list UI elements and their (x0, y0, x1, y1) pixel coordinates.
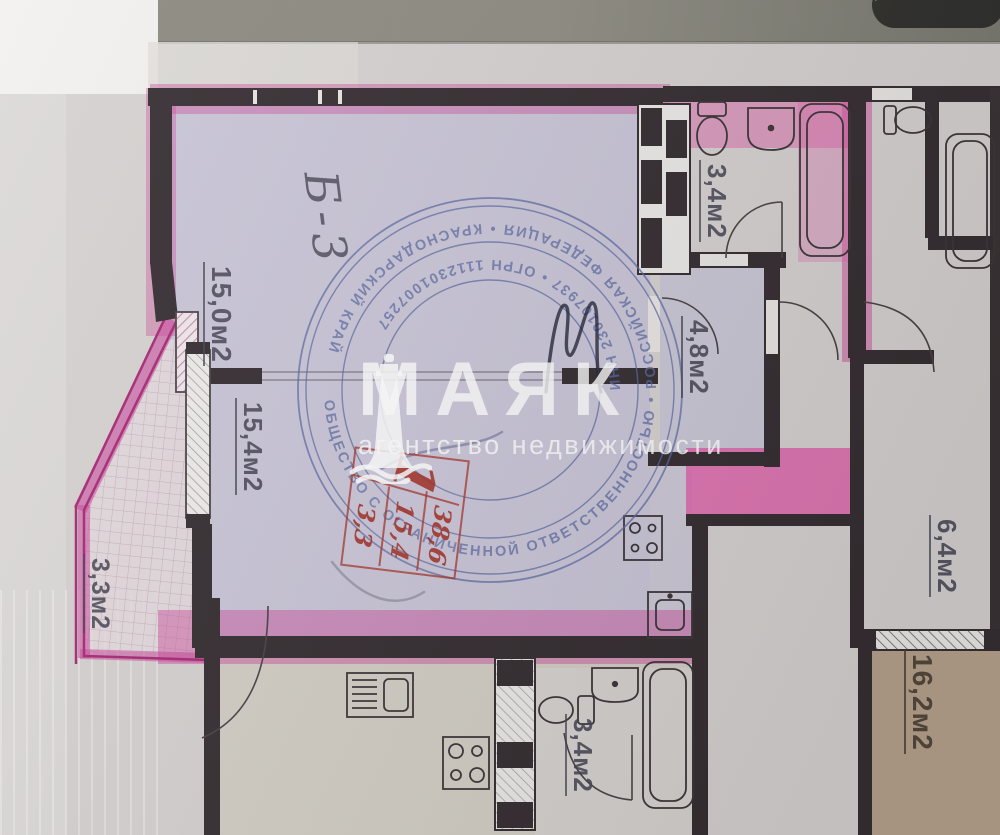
room-right-top-wall (860, 630, 1000, 650)
area-stamp: 1 38,6 15,4 3,3 (340, 446, 470, 579)
room-label-corridor: 6,4м2 (931, 515, 962, 597)
room-label-bathroom-top: 3,4м2 (701, 160, 732, 242)
floorplan-drawing: ОБЩЕСТВО С ОГРАНИЧЕННОЙ ОТВЕТСТВЕННОСТЬЮ… (0, 0, 1000, 835)
room-label-room-right: 16,2м2 (906, 650, 938, 754)
unit-mark-handwriting: Б-3 (293, 168, 358, 270)
room-label-balcony: 3,3м2 (85, 554, 114, 633)
room-label-kitchen: 15,4м2 (237, 398, 268, 495)
room-label-hall: 4,8м2 (683, 316, 714, 398)
room-label-bathroom-bottom: 3,4м2 (567, 714, 598, 796)
photo-edit-toolbar (872, 0, 1000, 28)
pen-icon (872, 0, 892, 2)
floorplan-photo: ОБЩЕСТВО С ОГРАНИЧЕННОЙ ОТВЕТСТВЕННОСТЬЮ… (0, 0, 1000, 835)
room-label-living: 15,0м2 (205, 262, 237, 366)
